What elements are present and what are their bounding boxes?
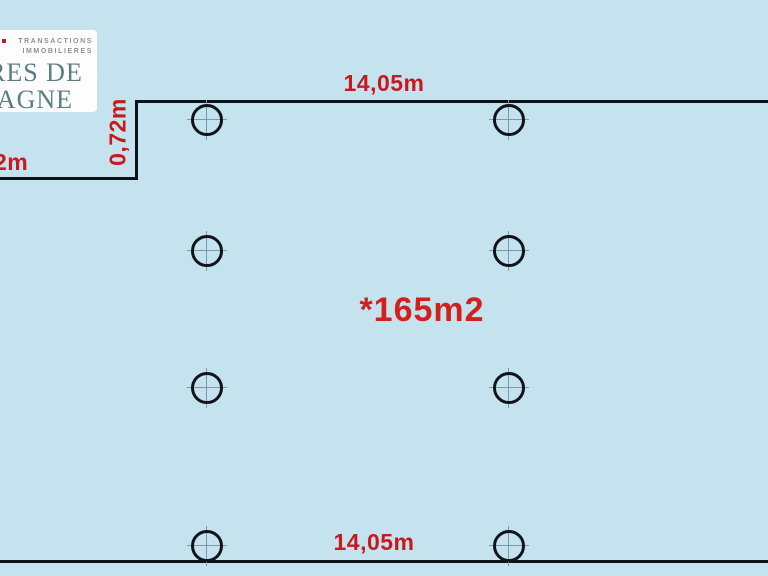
marker-circle-icon: [191, 104, 223, 136]
area-label: *165m2: [359, 291, 484, 330]
marker-circle-icon: [493, 530, 525, 562]
dimension-label-left: 2m: [0, 149, 28, 176]
marker-circle-icon: [191, 530, 223, 562]
wall-bottom: [0, 560, 768, 563]
dimension-label-top: 14,05m: [343, 70, 424, 97]
dimension-label-bottom: 14,05m: [333, 529, 414, 556]
marker-circle-icon: [493, 235, 525, 267]
floor-plan-canvas: 14,05m 0,72m 2m *165m2 14,05m TRANSACTIO…: [0, 0, 768, 576]
logo-name-line2: TAGNE: [0, 87, 73, 112]
wall-step-horizontal: [0, 177, 138, 180]
wall-top: [135, 100, 768, 103]
marker-circle-icon: [493, 372, 525, 404]
logo-tagline-line2: IMMOBILIERES: [0, 48, 93, 55]
dimension-label-step: 0,72m: [105, 98, 132, 166]
agency-logo: TRANSACTIONS IMMOBILIERES RES DE TAGNE: [0, 30, 97, 112]
marker-circle-icon: [191, 235, 223, 267]
marker-circle-icon: [493, 104, 525, 136]
logo-tagline-line1: TRANSACTIONS: [0, 38, 93, 45]
marker-circle-icon: [191, 372, 223, 404]
wall-step-vertical: [135, 100, 138, 180]
logo-name-line1: RES DE: [0, 60, 83, 86]
